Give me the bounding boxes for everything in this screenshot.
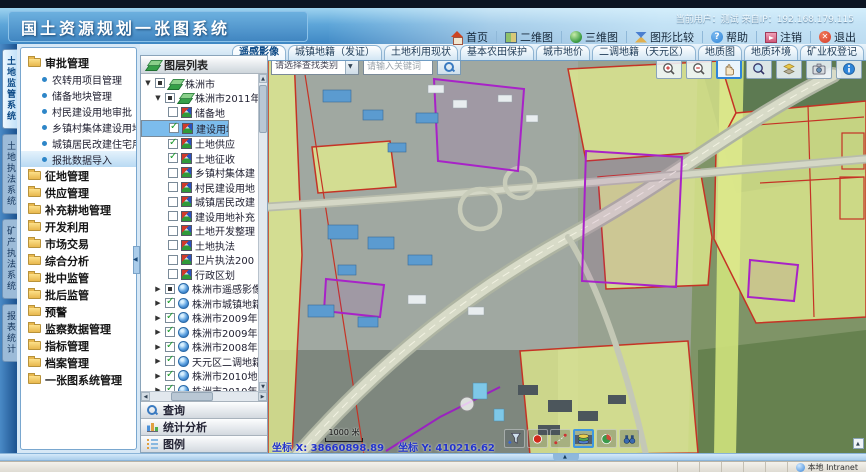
layer-tree-vertical-scrollbar[interactable]: ▲ ▼ xyxy=(258,74,267,391)
expander-icon[interactable] xyxy=(154,299,162,307)
map-layer-icon xyxy=(181,211,192,222)
scrollbar-thumb[interactable] xyxy=(259,85,267,133)
globe-icon xyxy=(178,370,189,381)
expander-icon[interactable] xyxy=(154,357,162,365)
layer-tree-node[interactable]: 株洲市 xyxy=(141,76,258,91)
legend-icon xyxy=(147,439,158,449)
overview-icon xyxy=(781,62,797,76)
layer-tree-leaf[interactable]: 城镇居民改建 xyxy=(141,195,258,210)
layer-checkbox[interactable] xyxy=(168,107,178,117)
globe-icon xyxy=(178,341,189,352)
scroll-left-arrow[interactable]: ◀ xyxy=(141,392,150,401)
help-icon xyxy=(711,31,723,43)
layer-checkbox[interactable] xyxy=(168,168,178,178)
layer-tree-leaf[interactable]: 土地征收 xyxy=(141,151,258,166)
overview-button[interactable] xyxy=(776,58,802,79)
search-icon xyxy=(147,405,158,416)
layer-tree-node[interactable]: 天元区二调地籍 xyxy=(141,354,258,369)
layer-tree-node[interactable]: 株洲市2010年矿山地质 xyxy=(141,383,258,391)
home-icon xyxy=(451,32,463,43)
layer-checkbox[interactable] xyxy=(155,78,165,88)
window-top-strip xyxy=(0,0,866,8)
pan-button[interactable] xyxy=(716,58,742,79)
search-category-value: 请选择查找类别 xyxy=(272,59,345,74)
layer-tree-leaf[interactable]: 储备地 xyxy=(141,105,258,120)
map-viewport[interactable]: 请选择查找类别 xyxy=(268,55,866,455)
legend-globe-icon xyxy=(599,432,614,446)
tab-urban-cadastre[interactable]: 城镇地籍（发证） xyxy=(288,45,382,60)
intranet-globe-icon xyxy=(796,463,805,472)
expander-icon[interactable] xyxy=(154,285,162,293)
layer-tree-leaf[interactable]: 建设用地补充 xyxy=(141,209,258,224)
app-logo-plate: 国土资源规划一张图系统 xyxy=(8,11,308,42)
map-layer-icon xyxy=(181,225,192,236)
layer-tree-leaf-selected[interactable]: 建设用地审批 xyxy=(141,120,229,137)
function-menu-panel: 审批管理 农转用项目管理 储备地块管理 村民建设用地审批 乡镇村集体建设用地 城… xyxy=(17,44,140,453)
layer-checkbox[interactable] xyxy=(168,197,178,207)
folder-icon xyxy=(28,290,41,299)
home-button[interactable]: 首页 xyxy=(445,28,494,46)
layer-tree-leaf[interactable]: 行政区划 xyxy=(141,267,258,282)
bullet-icon xyxy=(42,93,47,98)
measure-button[interactable] xyxy=(550,429,571,448)
layer-tree-leaf[interactable]: 土地执法 xyxy=(141,238,258,253)
map-layer-icon xyxy=(182,123,193,134)
map-scroll-up-arrow[interactable] xyxy=(853,438,864,449)
exit-button[interactable]: 退出 xyxy=(813,28,862,46)
bullet-icon xyxy=(42,77,47,82)
snapshot-icon xyxy=(811,62,827,76)
identify-icon xyxy=(751,62,767,76)
help-button[interactable]: 帮助 xyxy=(705,28,754,46)
tab-mining-rights[interactable]: 矿业权登记 xyxy=(800,45,864,60)
folder-icon xyxy=(28,239,41,248)
toolbar-divider xyxy=(561,31,562,43)
security-zone: 本地 Intranet xyxy=(788,462,866,472)
map-layer-icon xyxy=(181,254,192,265)
tab-urban-land-price[interactable]: 城市地价 xyxy=(536,45,590,60)
layer-checkbox[interactable] xyxy=(168,269,178,279)
sidebar-tab-land-enforcement[interactable]: 土地执法系统 xyxy=(2,134,17,214)
layers-icon xyxy=(146,59,160,70)
scale-label: 1000 米 xyxy=(325,427,363,438)
info-button[interactable] xyxy=(836,58,862,79)
bullet-icon xyxy=(42,109,47,114)
layer-tree-horizontal-scrollbar[interactable]: ◀ ▶ xyxy=(141,391,267,401)
folder-icon xyxy=(28,324,41,333)
menu-group[interactable]: 开发利用 xyxy=(21,218,136,235)
menu-group[interactable]: 监察数据管理 xyxy=(21,320,136,337)
map-tools xyxy=(656,58,862,79)
security-zone-label: 本地 Intranet xyxy=(808,462,858,472)
toolbar-divider xyxy=(810,31,811,43)
folder-icon xyxy=(28,341,41,350)
map-layer-icon xyxy=(181,269,192,280)
layer-tree-node[interactable]: 株洲市2009年基本农田 xyxy=(141,325,258,340)
menu-item[interactable]: 农转用项目管理 xyxy=(21,71,136,87)
toolbar-divider xyxy=(496,31,497,43)
compare-icon xyxy=(635,32,647,43)
layers-3d-icon xyxy=(576,432,591,446)
layer-checkbox[interactable] xyxy=(168,240,178,250)
logout-button[interactable]: 注销 xyxy=(759,28,808,46)
layer-checkbox[interactable] xyxy=(168,139,178,149)
layer-checkbox[interactable] xyxy=(168,153,178,163)
info-icon xyxy=(841,62,857,76)
accordion-statistics[interactable]: 统计分析 xyxy=(141,418,267,435)
layer-checkbox[interactable] xyxy=(165,327,175,337)
system-tab-strip: 土地监管系统 土地执法系统 矿产执法系统 报表统计 xyxy=(0,44,17,453)
menu-group[interactable]: 综合分析 xyxy=(21,252,136,269)
status-bar: 本地 Intranet xyxy=(0,461,866,472)
snapshot-button[interactable] xyxy=(806,58,832,79)
layers-panel: 图层列表 株洲市 株洲市2011年用地 储备地 建设用地审批 土地供应 土地征收… xyxy=(140,55,268,453)
filter-funnel-icon xyxy=(507,432,522,446)
globe-icon xyxy=(178,356,189,367)
collapse-toggle[interactable] xyxy=(553,454,579,461)
map-layer-icon xyxy=(181,138,192,149)
layer-tree-leaf[interactable]: 卫片执法200 xyxy=(141,253,258,268)
chart-icon xyxy=(147,422,158,432)
layer-tree-leaf[interactable]: 乡镇村集体建 xyxy=(141,166,258,181)
expander-icon[interactable] xyxy=(144,79,152,87)
bottom-collapse-bar xyxy=(0,453,866,461)
tab-geologic-env[interactable]: 地质环境 xyxy=(744,45,798,60)
filter-button[interactable] xyxy=(504,429,525,448)
map-3d-button[interactable]: 三维图 xyxy=(564,28,624,46)
layer-checkbox[interactable] xyxy=(165,313,175,323)
globe-icon xyxy=(178,298,189,309)
map-2d-button[interactable]: 二维图 xyxy=(499,28,559,46)
page-title: 国土资源规划一张图系统 xyxy=(21,15,230,39)
layer-checkbox[interactable] xyxy=(165,371,175,381)
binoculars-icon xyxy=(622,432,637,446)
accordion-legend[interactable]: 图例 xyxy=(141,435,267,452)
logout-icon xyxy=(765,32,777,43)
layer-tree-leaf[interactable]: 村民建设用地 xyxy=(141,180,258,195)
status-cell xyxy=(700,462,722,472)
status-cell xyxy=(744,462,766,472)
menu-item-highlighted[interactable]: 报批数据导入 xyxy=(21,151,136,167)
toolbar-divider xyxy=(626,31,627,43)
globe-3d-icon xyxy=(570,31,582,43)
sidebar-tab-land-supervision[interactable]: 土地监管系统 xyxy=(2,49,17,129)
menu-collapse-handle[interactable] xyxy=(133,246,140,274)
layer-tree-node[interactable]: 株洲市2009年土地利用 xyxy=(141,311,258,326)
scroll-down-arrow[interactable]: ▼ xyxy=(259,382,267,391)
layer-tree-node[interactable]: 株洲市2010地质图 xyxy=(141,369,258,384)
tab-farmland-protection[interactable]: 基本农田保护 xyxy=(460,45,534,60)
layer-tree-leaf[interactable]: 土地开发整理 xyxy=(141,224,258,239)
layer-checkbox[interactable] xyxy=(165,356,175,366)
zoom-out-button[interactable] xyxy=(686,58,712,79)
map-canvas[interactable] xyxy=(268,55,866,455)
status-cell xyxy=(722,462,744,472)
zoom-in-icon xyxy=(661,62,677,76)
layers-panel-header[interactable]: 图层列表 xyxy=(141,56,267,74)
select-point-button[interactable] xyxy=(527,429,548,448)
expander-icon[interactable] xyxy=(154,94,162,102)
menu-group[interactable]: 批后监管 xyxy=(21,286,136,303)
search-icon xyxy=(444,62,455,73)
map-layer-icon xyxy=(181,167,192,178)
map-layer-icon xyxy=(181,182,192,193)
menu-group[interactable]: 指标管理 xyxy=(21,337,136,354)
map-layer-icon xyxy=(181,107,192,118)
folder-icon xyxy=(28,205,41,214)
layer-tree-node[interactable]: 株洲市2008年地价 xyxy=(141,340,258,355)
globe-icon xyxy=(178,312,189,323)
folder-icon xyxy=(28,222,41,231)
sidebar-tab-mineral-enforcement[interactable]: 矿产执法系统 xyxy=(2,219,17,299)
toolbar-divider xyxy=(756,31,757,43)
folder-icon xyxy=(28,375,41,384)
folder-icon xyxy=(28,58,41,67)
layer-checkbox[interactable] xyxy=(169,123,179,133)
folder-icon xyxy=(28,188,41,197)
layer-checkbox[interactable] xyxy=(168,255,178,265)
bullet-icon xyxy=(42,157,47,162)
menu-item[interactable]: 村民建设用地审批 xyxy=(21,103,136,119)
sidebar-tab-report-stats[interactable]: 报表统计 xyxy=(2,304,17,362)
menu-group[interactable]: 市场交易 xyxy=(21,235,136,252)
identify-button[interactable] xyxy=(746,58,772,79)
coordinate-readout: 坐标 X: 38660898.89 坐标 Y: 410216.62 xyxy=(272,439,495,454)
top-toolbar: 首页 二维图 三维图 图形比较 帮助 注销 退出 xyxy=(445,28,862,46)
expander-icon[interactable] xyxy=(154,372,162,380)
layers-icon xyxy=(168,78,182,89)
folder-icon xyxy=(28,256,41,265)
scroll-up-arrow[interactable]: ▲ xyxy=(259,74,267,83)
map-layer-icon xyxy=(181,196,192,207)
accordion-query[interactable]: 查询 xyxy=(141,401,267,418)
menu-group[interactable]: 预警 xyxy=(21,303,136,320)
map-layer-icon xyxy=(181,240,192,251)
toolbar-divider xyxy=(702,31,703,43)
folder-icon xyxy=(28,171,41,180)
menu-group[interactable]: 征地管理 xyxy=(21,167,136,184)
map-bottom-tools xyxy=(504,429,640,448)
measure-distance-icon xyxy=(553,432,568,446)
layer-checkbox[interactable] xyxy=(165,298,175,308)
pan-hand-icon xyxy=(721,62,737,76)
layer-checkbox[interactable] xyxy=(165,93,175,103)
binoculars-button[interactable] xyxy=(619,429,640,448)
status-cell xyxy=(766,462,788,472)
user-info: 当前用户：测试 来自IP：192.168.179.115 xyxy=(676,12,854,25)
globe-icon xyxy=(178,327,189,338)
status-cell xyxy=(678,462,700,472)
folder-icon xyxy=(28,273,41,282)
zoom-in-button[interactable] xyxy=(656,58,682,79)
layer-checkbox[interactable] xyxy=(168,182,178,192)
menu-item[interactable]: 城镇居民改建住宅用地 xyxy=(21,135,136,151)
layer-checkbox[interactable] xyxy=(165,342,175,352)
layer-tree-leaf[interactable]: 土地供应 xyxy=(141,137,258,152)
layer-tree: 株洲市 株洲市2011年用地 储备地 建设用地审批 土地供应 土地征收 乡镇村集… xyxy=(141,74,258,391)
menu-group[interactable]: 补充耕地管理 xyxy=(21,201,136,218)
layer-tree-node[interactable]: 株洲市2011年用地 xyxy=(141,91,258,106)
menu-group[interactable]: 档案管理 xyxy=(21,354,136,371)
status-message-area xyxy=(0,462,678,472)
map-2d-icon xyxy=(505,32,517,43)
legend-globe-button[interactable] xyxy=(596,429,617,448)
scrollbar-thumb[interactable] xyxy=(171,392,213,401)
title-bar: 国土资源规划一张图系统 当前用户：测试 来自IP：192.168.179.115… xyxy=(0,8,866,44)
layer-checkbox[interactable] xyxy=(168,226,178,236)
exit-icon xyxy=(819,31,831,43)
scroll-right-arrow[interactable]: ▶ xyxy=(258,392,267,401)
coordinate-y: 坐标 Y: 410216.62 xyxy=(398,439,495,454)
menu-group[interactable]: 供应管理 xyxy=(21,184,136,201)
layers-3d-button[interactable] xyxy=(573,429,594,448)
folder-icon xyxy=(28,358,41,367)
bullet-icon xyxy=(42,125,47,130)
tab-geologic-map[interactable]: 地质图 xyxy=(698,45,742,60)
folder-icon xyxy=(28,307,41,316)
chevron-down-icon[interactable] xyxy=(345,59,358,74)
select-point-icon xyxy=(530,432,545,446)
expander-icon[interactable] xyxy=(154,343,162,351)
expander-icon[interactable] xyxy=(154,314,162,322)
menu-item[interactable]: 乡镇村集体建设用地 xyxy=(21,119,136,135)
menu-group-approval[interactable]: 审批管理 xyxy=(21,54,136,71)
menu-item[interactable]: 储备地块管理 xyxy=(21,87,136,103)
map-layer-icon xyxy=(181,153,192,164)
expander-icon[interactable] xyxy=(154,328,162,336)
menu-group[interactable]: 批中监管 xyxy=(21,269,136,286)
layer-tree-node[interactable]: 株洲市遥感影像 xyxy=(141,282,258,297)
globe-icon xyxy=(178,283,189,294)
coordinate-x: 坐标 X: 38660898.89 xyxy=(272,439,384,454)
bullet-icon xyxy=(42,141,47,146)
tab-land-use[interactable]: 土地利用现状 xyxy=(384,45,458,60)
menu-group[interactable]: 一张图系统管理 xyxy=(21,371,136,388)
zoom-out-icon xyxy=(691,62,707,76)
tab-second-survey[interactable]: 二调地籍（天元区） xyxy=(592,45,696,60)
layer-checkbox[interactable] xyxy=(168,211,178,221)
layers-icon xyxy=(178,92,192,103)
function-menu: 审批管理 农转用项目管理 储备地块管理 村民建设用地审批 乡镇村集体建设用地 城… xyxy=(20,47,137,450)
layer-tree-node[interactable]: 株洲市城镇地籍 xyxy=(141,296,258,311)
layers-panel-title: 图层列表 xyxy=(164,57,208,73)
layer-checkbox[interactable] xyxy=(165,284,175,294)
compare-button[interactable]: 图形比较 xyxy=(629,28,700,46)
